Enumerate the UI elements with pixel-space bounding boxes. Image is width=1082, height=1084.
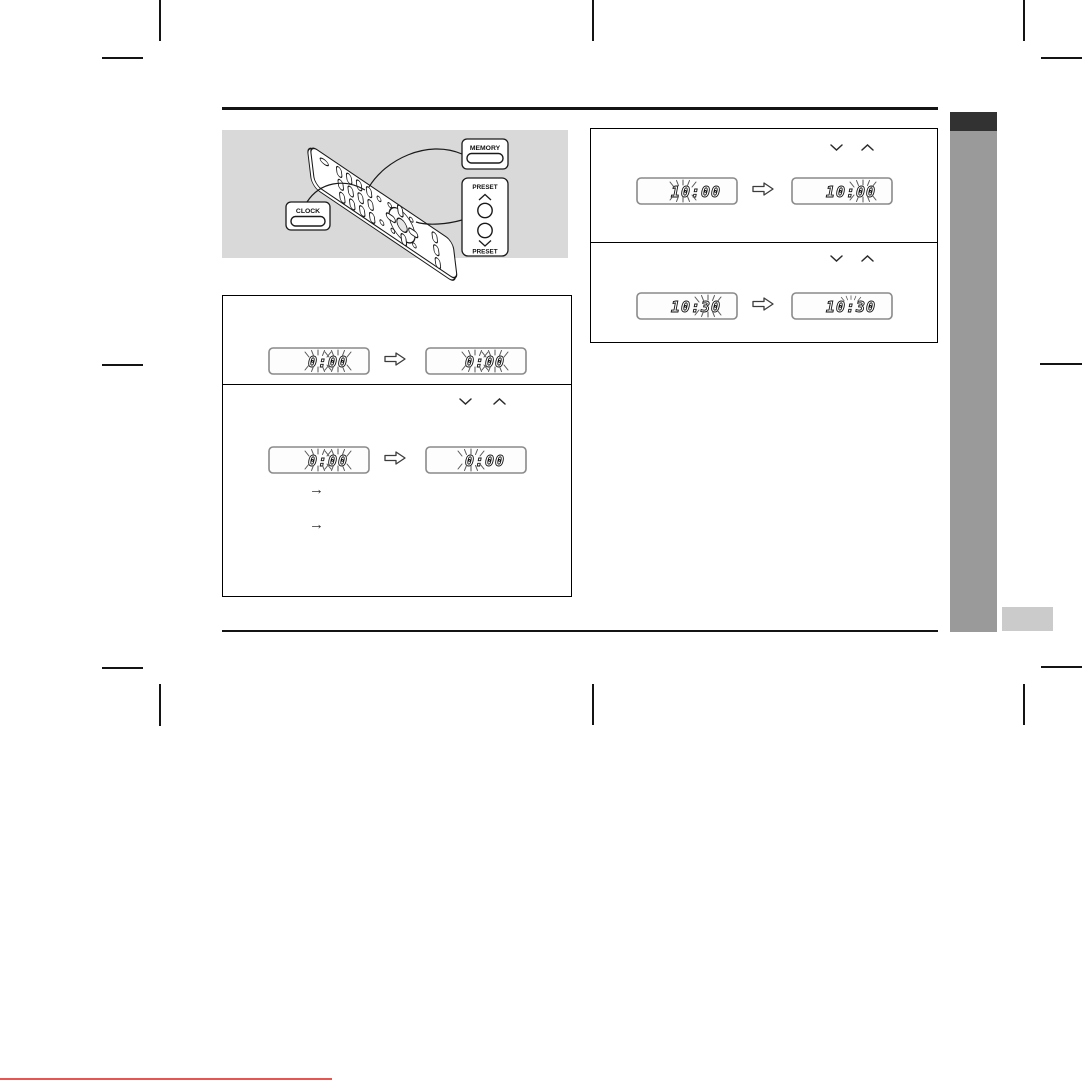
remote-illustration: MEMORY CLOCK PRESET PRESET — [222, 130, 568, 258]
lcd-time-text: 10:30 — [826, 298, 876, 316]
crop-mark — [159, 684, 161, 726]
remote-illustration-art: MEMORY CLOCK PRESET PRESET — [222, 130, 568, 258]
crop-mark — [159, 0, 161, 41]
bottom-red-rule — [0, 1078, 332, 1080]
preset-buttons-callout: PRESET PRESET — [462, 178, 508, 256]
lcd-display-initial-before: 0:00 — [268, 347, 370, 375]
clock-setting-steps-box: 0:00 0:00 0:00 — [222, 295, 572, 597]
manual-page: MEMORY CLOCK PRESET PRESET — [0, 0, 1082, 1084]
preset-down-chevron-icon — [831, 137, 842, 155]
lcd-display-hour-before: 0:00 — [268, 446, 370, 474]
lcd-display-hour-after: 0:00 — [425, 446, 527, 474]
preset-up-chevron-icon — [494, 391, 505, 409]
crop-mark — [1023, 684, 1025, 725]
panel-divider — [591, 242, 937, 243]
bottom-rule — [222, 630, 938, 632]
top-rule — [222, 107, 938, 110]
crop-mark — [1041, 57, 1082, 59]
lcd-display-initial-after: 0:00 — [425, 347, 527, 375]
clock-button-callout: CLOCK — [286, 202, 330, 230]
lcd-display-sethour-before: 10:00 — [636, 177, 738, 205]
preset-down-chevron-icon — [460, 391, 471, 409]
crop-mark — [1023, 0, 1025, 41]
note-right-arrow-icon: → — [309, 482, 324, 497]
step-arrow-icon — [751, 181, 775, 202]
sidebar-gray-bar — [950, 131, 997, 632]
crop-mark — [102, 667, 143, 669]
preset-down-chevron-icon — [831, 248, 842, 266]
preset-up-chevron-icon — [862, 248, 873, 266]
crop-mark — [592, 684, 594, 725]
panel-divider — [223, 384, 571, 385]
memory-button — [467, 154, 503, 164]
memory-button-label: MEMORY — [470, 145, 501, 152]
clock-button-label: CLOCK — [296, 208, 320, 215]
preset-up-label: PRESET — [472, 184, 497, 191]
crop-mark — [102, 364, 143, 366]
memory-button-callout: MEMORY — [462, 139, 508, 169]
sidebar-dark-tab — [950, 112, 997, 131]
clock-button — [291, 217, 325, 227]
memory-callout-line — [369, 149, 462, 187]
crop-mark — [102, 57, 143, 59]
page-corner-tab — [1002, 607, 1053, 631]
step-arrow-icon — [751, 296, 775, 317]
preset-down-label: PRESET — [472, 249, 497, 256]
preset-down-button — [478, 223, 492, 237]
crop-mark — [1041, 666, 1082, 668]
preset-up-button — [478, 203, 492, 217]
time-adjust-steps-box: 10:00 10:00 10:30 — [590, 128, 938, 343]
lcd-display-sethour-after: 10:00 — [791, 177, 893, 205]
lcd-display-setminute-before: 10:30 — [636, 292, 738, 320]
step-arrow-icon — [383, 450, 407, 471]
note-right-arrow-icon: → — [309, 517, 324, 532]
preset-up-chevron-icon — [862, 137, 873, 155]
crop-mark — [592, 0, 594, 41]
lcd-display-setminute-after: 10:30 — [791, 292, 893, 320]
step-arrow-icon — [383, 351, 407, 372]
crop-mark — [1040, 363, 1082, 365]
